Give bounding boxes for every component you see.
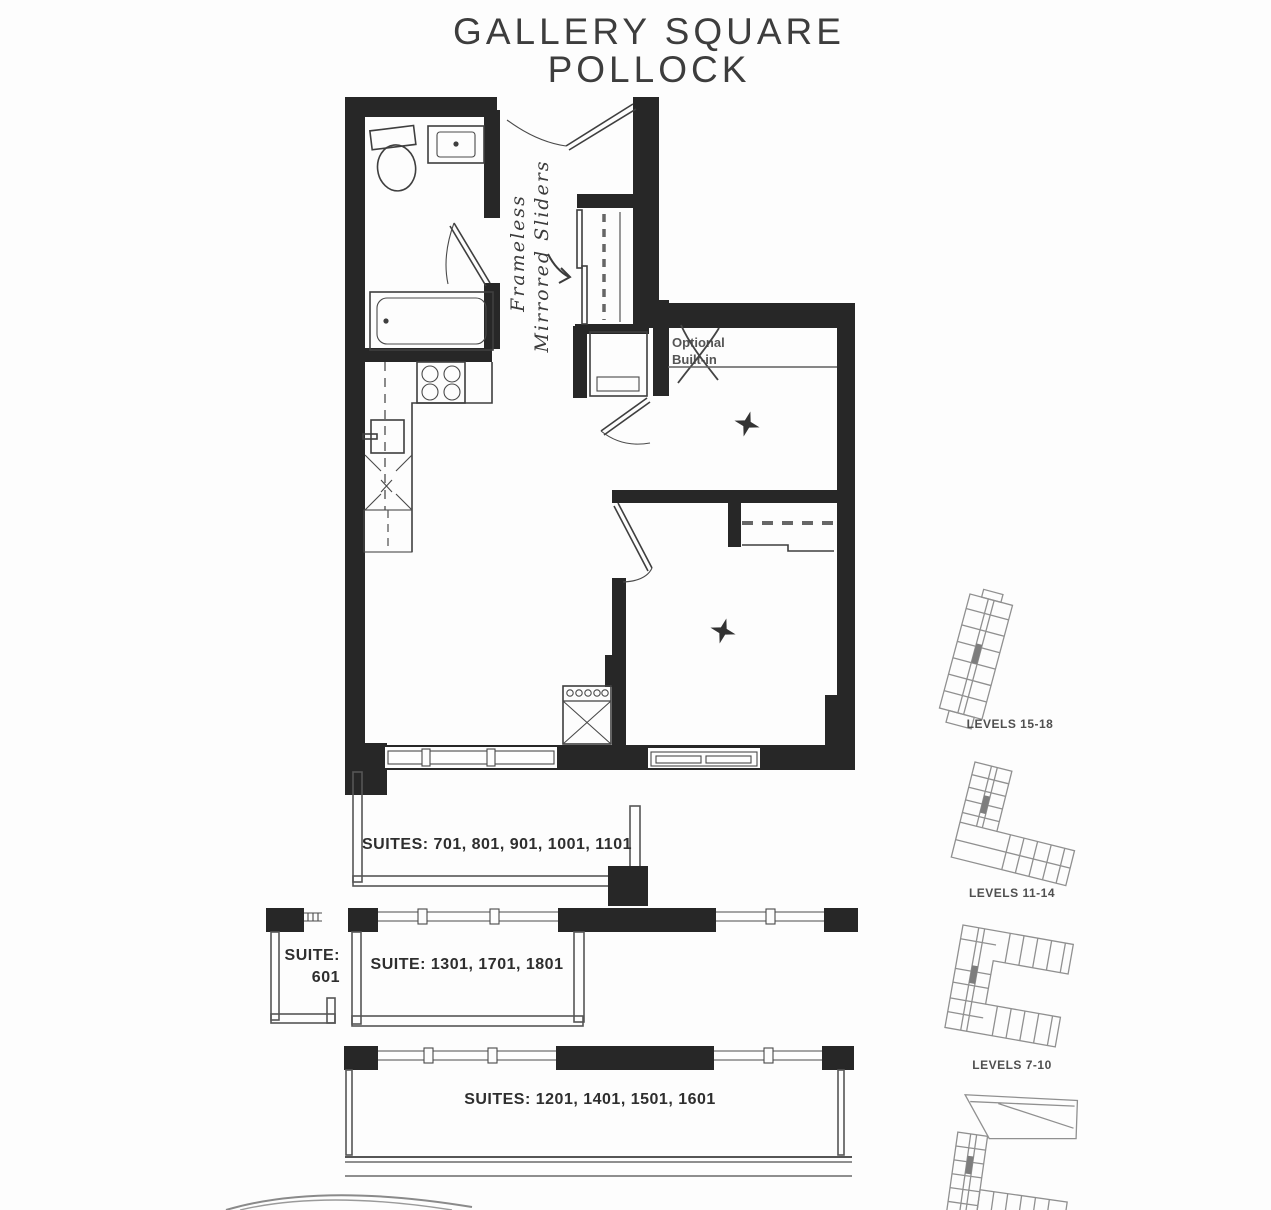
- floorplan-page: GALLERY SQUARE POLLOCK: [0, 0, 1271, 1210]
- window-band-row3: [344, 1046, 854, 1070]
- kitchen: [363, 362, 492, 552]
- keyplan-label-7-10: LEVELS 7-10: [972, 1058, 1052, 1072]
- lower-cabinet: [364, 510, 412, 552]
- unit-walls: [345, 97, 855, 795]
- optional-builtin-line2: Built-in: [672, 352, 717, 367]
- title-line1: GALLERY SQUARE: [453, 11, 845, 52]
- keyplan-levels-11-14: LEVELS 11-14: [951, 762, 1089, 900]
- corner-cabinet: [365, 455, 412, 510]
- ceiling-light-icon: [707, 615, 739, 647]
- closet-annotation: Frameless Mirrored Sliders: [507, 159, 570, 353]
- site-curve: [226, 1195, 472, 1210]
- balcony-suite-601: SUITE: 601: [271, 932, 340, 1023]
- suite-label-mid: SUITE: 1301, 1701, 1801: [371, 956, 564, 973]
- entry-door: [507, 104, 636, 150]
- toilet: [370, 126, 421, 194]
- optional-builtin-line1: Optional: [672, 335, 725, 350]
- bathroom-door: [446, 223, 490, 286]
- bedroom: [614, 503, 834, 647]
- closet-note-line1: Frameless: [507, 194, 529, 313]
- stove: [417, 362, 465, 403]
- foyer-closet: [577, 210, 620, 324]
- keyplan-levels-7-10: LEVELS 7-10: [945, 925, 1073, 1072]
- keyplan-partial: [946, 1085, 1081, 1210]
- suite-label-601-line1: SUITE:: [285, 947, 340, 964]
- plan-title: GALLERY SQUARE POLLOCK: [453, 11, 845, 90]
- kitchen-sink: [363, 420, 404, 453]
- living-room: Optional Built-in: [668, 325, 837, 440]
- bathroom: [370, 126, 493, 350]
- fan-coil-unit: [563, 686, 611, 744]
- bathtub: [370, 292, 493, 350]
- suite-label-601-line2: 601: [312, 969, 340, 986]
- ceiling-light-icon: [731, 408, 763, 440]
- balcony-bottom: SUITES: 1201, 1401, 1501, 1601: [345, 1070, 852, 1176]
- bathroom-sink: [428, 126, 484, 163]
- laundry-closet: [590, 332, 650, 444]
- title-line2: POLLOCK: [548, 49, 751, 90]
- suite-label-bottom: SUITES: 1201, 1401, 1501, 1601: [464, 1091, 716, 1108]
- balcony-mid: SUITE: 1301, 1701, 1801: [352, 932, 584, 1026]
- balcony-top: SUITES: 701, 801, 901, 1001, 1101: [353, 772, 648, 906]
- suite-label-top: SUITES: 701, 801, 901, 1001, 1101: [362, 836, 632, 853]
- bedroom-closet: [742, 523, 834, 551]
- keyplan-label-15-18: LEVELS 15-18: [967, 717, 1054, 731]
- keyplan-label-11-14: LEVELS 11-14: [969, 886, 1055, 900]
- window-band-row2: [266, 908, 858, 932]
- keyplan-levels-15-18: LEVELS 15-18: [936, 586, 1053, 731]
- bedroom-door: [614, 503, 652, 582]
